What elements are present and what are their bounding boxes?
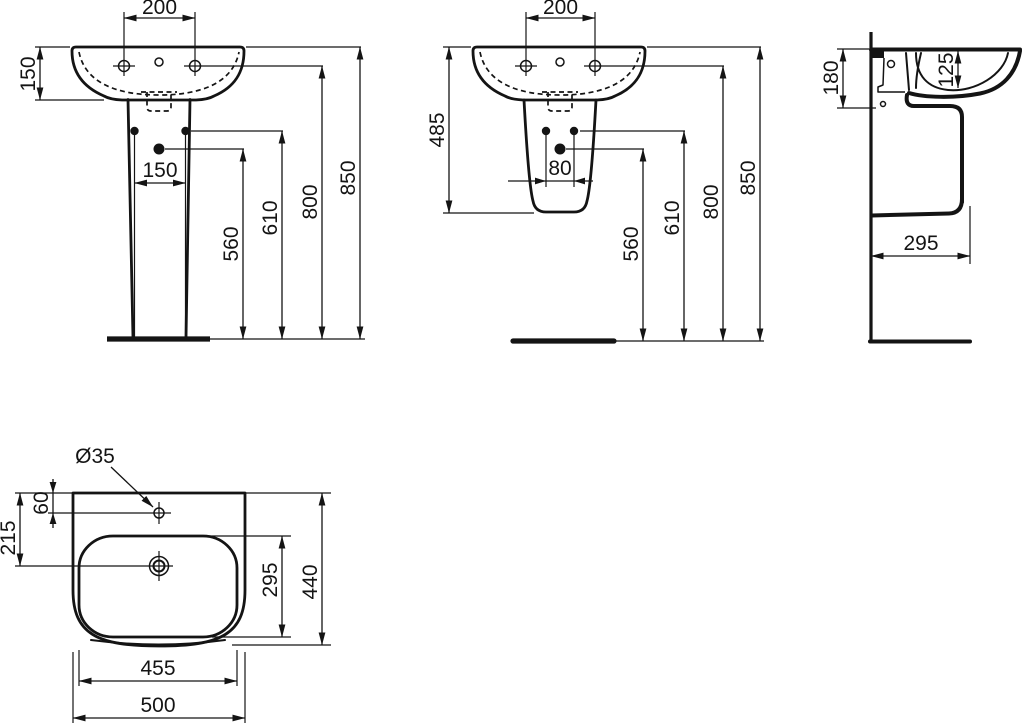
drain-hidden-line (542, 92, 578, 111)
bowl-plan-outline (79, 536, 237, 637)
view-front-pedestal: 200 150 150 560 610 800 850 (17, 0, 365, 339)
trap-point (154, 144, 165, 155)
dim-label-trap-height: 560 (620, 226, 643, 261)
view-front-semi-pedestal: 200 485 80 560 610 800 850 (426, 0, 764, 341)
dim-label-overall-depth: 440 (299, 564, 322, 599)
fixing-hole-right (181, 127, 189, 135)
dim-label-tap-spacing: 200 (142, 0, 177, 19)
dim-label-bowl-length: 295 (259, 562, 282, 597)
rim-wall-joint (872, 50, 884, 58)
bracket-fixing-hole (888, 61, 895, 68)
dim-label-drain-offset: 215 (0, 520, 20, 555)
lower-fixing-hole (881, 102, 886, 107)
dim-label-tap-spacing: 200 (543, 0, 578, 19)
washbasin-dimension-drawing: 200 150 150 560 610 800 850 (0, 0, 1024, 724)
dim-label-bowl-depth: 125 (935, 52, 958, 87)
dim-label-fixing-spacing: 150 (142, 159, 177, 182)
view-plan: Ø35 60 215 295 440 455 500 (0, 445, 331, 723)
dim-label-fixing-height: 610 (661, 200, 684, 235)
dim-label-bowl-width: 455 (140, 657, 175, 680)
mounting-bracket (878, 58, 905, 92)
dim-label-total-height: 850 (737, 160, 760, 195)
dim-label-tap-hole-offset: 60 (30, 491, 53, 514)
fixing-hole-left (542, 127, 550, 135)
drain-hidden-line (141, 92, 177, 111)
dim-label-tap-height: 800 (700, 184, 723, 219)
pedestal-outline (128, 100, 190, 339)
overflow-hole (155, 58, 163, 66)
technical-drawing-sheet: 200 150 150 560 610 800 850 (0, 0, 1024, 724)
leader-line-hole-diameter (111, 467, 153, 507)
dim-label-unit-height: 485 (426, 112, 449, 147)
trap-point (555, 144, 566, 155)
dim-label-fixing-spacing: 80 (548, 157, 571, 180)
fixing-hole-right (570, 127, 578, 135)
arrowhead (535, 178, 546, 185)
dim-label-mounting-height: 180 (820, 60, 843, 95)
overflow-hole (556, 58, 564, 66)
dim-label-total-height: 850 (337, 160, 360, 195)
dim-label-overall-width: 500 (140, 694, 175, 717)
dim-label-basin-depth: 295 (903, 232, 938, 255)
arrowhead (574, 178, 585, 185)
semi-pedestal-outline (524, 100, 596, 212)
trap-and-front-profile (907, 95, 962, 202)
dim-label-fixing-height: 610 (259, 200, 282, 235)
dim-label-rim-height: 150 (17, 56, 40, 91)
dim-label-trap-height: 560 (220, 226, 243, 261)
view-side: 180 125 295 (820, 32, 1020, 342)
dim-label-tap-height: 800 (299, 184, 322, 219)
bowl-inner-profile (916, 53, 1008, 90)
fixing-hole-left (130, 127, 138, 135)
semi-pedestal-bottom-profile (872, 199, 962, 216)
dim-label-hole-diameter: Ø35 (75, 445, 115, 468)
